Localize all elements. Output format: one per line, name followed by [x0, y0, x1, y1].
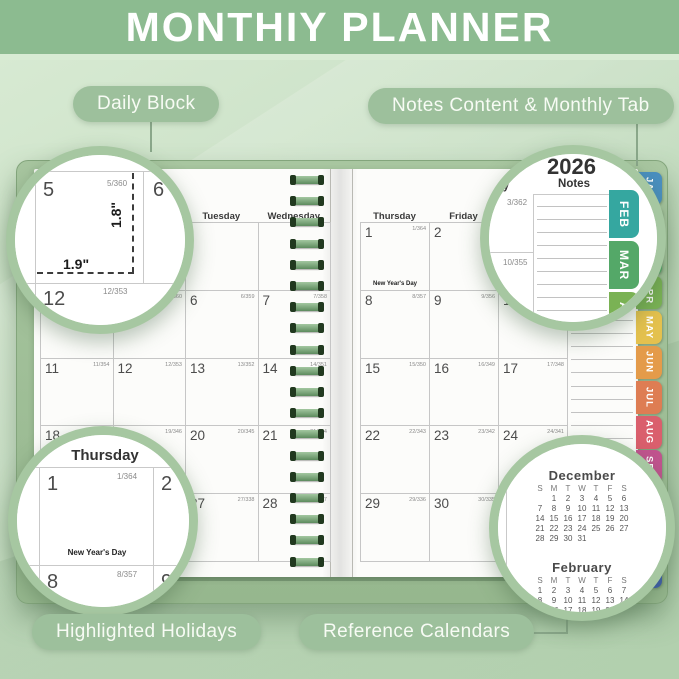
calendar-cell: 2020/345: [186, 426, 259, 494]
magnifier-circle-holidays: Thursday 1 1/364 2 New Year's Day 8 8/35…: [8, 426, 198, 616]
weekday-letter: S: [617, 576, 631, 586]
connector-line: [150, 118, 152, 152]
mini-calendar-day: 10: [561, 596, 575, 606]
cell-daycount: 10/355: [503, 258, 527, 267]
callout-highlighted-holidays: Highlighted Holidays: [32, 614, 261, 650]
mini-calendar-day: 29: [547, 534, 561, 544]
month-tab: JUL: [636, 381, 662, 414]
spiral-loop: [292, 473, 322, 481]
month-tab-magnified: MAR: [609, 241, 639, 289]
cell-date: 20: [190, 428, 205, 443]
mini-calendar-day: 3: [561, 586, 575, 596]
mini-calendar-weekdays: SMTWTFS: [531, 484, 633, 494]
spiral-loop: [292, 558, 322, 566]
cell-daycount: 23/342: [478, 429, 495, 435]
mini-calendar-day: 4: [575, 586, 589, 596]
month-tab: JUN: [636, 346, 662, 379]
mini-calendar-day: 23: [561, 524, 575, 534]
mini-calendar-day: 5: [589, 586, 603, 596]
spiral-loop: [292, 303, 322, 311]
grid-line: [35, 171, 36, 315]
cell-daycount: 8/357: [117, 570, 137, 579]
mini-calendar-day: 19: [589, 606, 603, 612]
cell-date: 15: [365, 361, 380, 376]
spiral-loop: [292, 282, 322, 290]
notes-line: [537, 232, 607, 233]
mini-calendar-day: [603, 534, 617, 544]
cell-date: 5: [43, 179, 54, 202]
month-tab-magnified: APR: [609, 292, 639, 322]
planner-year: 2026: [547, 154, 596, 180]
mini-calendar-week: 21222324252627: [531, 524, 633, 534]
height-dimension-line: [132, 173, 134, 273]
product-image: MONTHIY PLANNER SundayMondayTuesdayWedne…: [0, 0, 679, 679]
mini-calendar-week: 891011121314: [531, 596, 633, 606]
width-dimension-line: [37, 272, 134, 274]
cell-date: 1: [365, 225, 373, 240]
mini-calendar-day: 16: [561, 514, 575, 524]
month-tab-label: FEB: [617, 201, 631, 228]
spiral-loop: [292, 409, 322, 417]
mini-calendar-day: 4: [589, 494, 603, 504]
spiral-loop: [292, 240, 322, 248]
weekday-letter: F: [603, 484, 617, 494]
spiral-loop: [292, 218, 322, 226]
callout-notes-tab: Notes Content & Monthly Tab: [368, 88, 674, 124]
mini-calendar-february: FebruarySMTWTFS1234567891011121314151617…: [531, 560, 633, 612]
holiday-label: New Year's Day: [43, 548, 151, 557]
cell-date: 16: [434, 361, 449, 376]
spiral-loop: [292, 261, 322, 269]
calendar-cell: 66/359: [186, 291, 259, 359]
cell-date: 6: [153, 179, 164, 202]
mini-calendar-day: 8: [547, 504, 561, 514]
calendar-cell: 88/357: [361, 291, 430, 359]
cell-date: 17: [503, 361, 518, 376]
mini-calendar-day: 6: [617, 494, 631, 504]
month-tab-label: JUL: [644, 387, 655, 408]
cell-date: 28: [263, 496, 278, 511]
weekday-letter: T: [589, 484, 603, 494]
mini-calendar-day: 18: [589, 514, 603, 524]
month-tab-label: APR: [617, 302, 631, 322]
cell-daycount: 12/353: [103, 287, 127, 296]
mini-calendar-day: 1: [533, 586, 547, 596]
weekday-letter: T: [589, 576, 603, 586]
callout-reference-calendars: Reference Calendars: [299, 614, 534, 650]
mini-calendar-day: 11: [575, 596, 589, 606]
connector-line: [636, 122, 638, 166]
mini-calendar-title: December: [531, 468, 633, 484]
cell-daycount: 19/346: [165, 429, 182, 435]
notes-line: [571, 412, 633, 413]
cell-date: 2: [161, 473, 172, 496]
grid-line: [506, 444, 507, 612]
cell-daycount: 17/348: [547, 362, 564, 368]
notes-line: [537, 271, 607, 272]
mini-calendar-week: 14151617181920: [531, 514, 633, 524]
cell-daycount: 22/343: [409, 429, 426, 435]
mini-calendar-day: 7: [617, 586, 631, 596]
month-tab-label: JUN: [644, 351, 655, 373]
mini-calendar-day: 17: [561, 606, 575, 612]
cell-daycount-fragment: 61: [16, 179, 25, 188]
mini-calendar-week: 78910111213: [531, 504, 633, 514]
notes-line: [571, 333, 633, 334]
cell-daycount: 13/352: [238, 362, 255, 368]
weekday-letter: T: [561, 484, 575, 494]
magnifier-circle-daily-block: 61 5 5/360 6 1.8" 1.9" 12 12/353: [6, 146, 194, 334]
cell-date: 1: [47, 473, 58, 496]
spiral-loop: [292, 197, 322, 205]
cell-date: 8: [365, 293, 373, 308]
notes-line: [537, 258, 607, 259]
day-header: Thursday: [360, 211, 429, 222]
notes-line: [537, 245, 607, 246]
product-banner: MONTHIY PLANNER: [0, 0, 679, 54]
mini-calendar-day: 31: [575, 534, 589, 544]
mini-calendar-week: 15161718192021: [531, 606, 633, 612]
notes-line: [571, 399, 633, 400]
cell-date: 2: [434, 225, 442, 240]
mini-calendar-day: 16: [547, 606, 561, 612]
cell-daycount: 24/341: [547, 429, 564, 435]
mini-calendar-day: [589, 534, 603, 544]
month-tab-magnified: FEB: [609, 190, 639, 238]
day-header: Tuesday: [185, 211, 258, 222]
spiral-loop: [292, 388, 322, 396]
cell-daycount: 5/360: [107, 179, 127, 188]
month-tab-label: AUG: [644, 420, 655, 444]
mini-calendar-day: 9: [547, 596, 561, 606]
day-header: Thursday: [53, 447, 157, 464]
mini-calendar-week: 123456: [531, 494, 633, 504]
mini-calendar-day: 27: [617, 524, 631, 534]
calendar-cell: 1313/352: [186, 359, 259, 427]
mini-calendar-day: 1: [547, 494, 561, 504]
mini-calendar-day: 25: [589, 524, 603, 534]
calendar-cell: 1111/354: [41, 359, 114, 427]
mini-calendar-day: 24: [575, 524, 589, 534]
month-tab: AUG: [636, 416, 662, 449]
callout-daily-block: Daily Block: [73, 86, 219, 122]
grid-line: [35, 467, 189, 468]
cell-date: 7: [263, 293, 271, 308]
cell-date: 8: [47, 571, 58, 594]
cell-daycount: 1/364: [412, 226, 426, 232]
mini-calendar-day: 8: [533, 596, 547, 606]
mini-calendar-day: 18: [575, 606, 589, 612]
page-title: MONTHIY PLANNER: [126, 4, 554, 51]
notes-line: [537, 219, 607, 220]
mini-calendar-day: 10: [575, 504, 589, 514]
grid-line: [533, 194, 609, 195]
cell-daycount: 12/353: [165, 362, 182, 368]
mini-calendar-day: 13: [603, 596, 617, 606]
banner-accent-strip: [0, 54, 679, 60]
cell-date: 13: [190, 361, 205, 376]
spiral-loop: [292, 430, 322, 438]
calendar-cell: 2929/336: [361, 494, 430, 562]
notes-line: [537, 310, 607, 311]
grid-line: [39, 467, 40, 607]
month-tab: MAY: [636, 311, 662, 344]
calendar-cell: 11/364New Year's Day: [361, 223, 430, 291]
mini-calendar-day: 21: [533, 524, 547, 534]
mini-calendar-day: 12: [603, 504, 617, 514]
spiral-loop: [292, 494, 322, 502]
cell-date: 12: [118, 361, 133, 376]
mini-calendar-day: 6: [603, 586, 617, 596]
mini-calendar-day: 19: [603, 514, 617, 524]
magnifier-content: 2026 y Notes 3/362 10/355 FEBMARAPRMAY: [489, 154, 657, 322]
grid-line: [533, 194, 534, 322]
cell-date: 14: [263, 361, 278, 376]
cell-daycount: 9/356: [481, 294, 495, 300]
weekday-letter: F: [603, 576, 617, 586]
mini-calendar-day: 20: [603, 606, 617, 612]
grid-line: [489, 252, 533, 253]
height-dimension-label: 1.8": [108, 202, 124, 228]
spiral-loop: [292, 176, 322, 184]
cell-date: 6: [190, 293, 198, 308]
magnifier-circle-reference-calendars: DecemberSMTWTFS1234567891011121314151617…: [489, 435, 675, 621]
cell-daycount: 3/362: [507, 198, 527, 207]
grid-line: [33, 171, 185, 172]
notes-line: [571, 425, 633, 426]
mini-calendar-day: 26: [603, 524, 617, 534]
cell-date: 11: [45, 361, 59, 376]
cell-daycount: 15/350: [409, 362, 426, 368]
weekday-letter: S: [533, 576, 547, 586]
spine-shadow-right: [340, 169, 358, 577]
mini-calendar-day: 3: [575, 494, 589, 504]
weekday-letter: T: [561, 576, 575, 586]
grid-line: [15, 283, 185, 284]
cell-daycount: 29/336: [409, 497, 426, 503]
notes-column-header: Notes: [539, 178, 609, 190]
mini-calendar-day: 14: [617, 596, 631, 606]
calendar-cell: 2323/342: [430, 426, 499, 494]
cell-daycount: 6/359: [241, 294, 255, 300]
month-tab-label: MAY: [644, 316, 655, 339]
weekday-letter: W: [575, 484, 589, 494]
notes-line: [571, 359, 633, 360]
notes-line: [537, 284, 607, 285]
mini-calendar-day: 28: [533, 534, 547, 544]
mini-calendar-day: 20: [617, 514, 631, 524]
cell-daycount: 16/349: [478, 362, 495, 368]
mini-calendar-day: 9: [561, 504, 575, 514]
notes-line: [537, 206, 607, 207]
calendar-cell: 1212/353: [114, 359, 187, 427]
calendar-cell: 2828/337: [259, 494, 332, 562]
calendar-cell: 99/356: [430, 291, 499, 359]
cell-daycount: 11/354: [93, 362, 109, 368]
weekday-letter: M: [547, 484, 561, 494]
mini-calendar-day: 11: [589, 504, 603, 514]
mini-calendar-week: 1234567: [531, 586, 633, 596]
cell-date: 22: [365, 428, 380, 443]
mini-calendar-day: [533, 494, 547, 504]
weekday-letter: S: [617, 484, 631, 494]
calendar-cell: 1717/348: [499, 359, 568, 427]
notes-line: [537, 297, 607, 298]
cell-date: 12: [43, 288, 65, 311]
mini-calendar-day: 7: [533, 504, 547, 514]
cell-date: 21: [263, 428, 278, 443]
mini-calendar-day: 2: [561, 494, 575, 504]
weekday-letter: W: [575, 576, 589, 586]
grid-line: [17, 565, 189, 566]
mini-calendar-day: 13: [617, 504, 631, 514]
mini-calendar-december: DecemberSMTWTFS1234567891011121314151617…: [531, 468, 633, 544]
mini-calendar-day: 5: [603, 494, 617, 504]
magnifier-content: Thursday 1 1/364 2 New Year's Day 8 8/35…: [17, 435, 189, 607]
mini-calendar-day: 30: [561, 534, 575, 544]
mini-calendar-weekdays: SMTWTFS: [531, 576, 633, 586]
calendar-cell: 1616/349: [430, 359, 499, 427]
spiral-loop: [292, 324, 322, 332]
day-header-fragment: y: [503, 180, 509, 192]
spiral-loop: [292, 536, 322, 544]
spiral-loop: [292, 346, 322, 354]
mini-calendar-day: 21: [617, 606, 631, 612]
calendar-cell: 2222/343: [361, 426, 430, 494]
notes-line: [571, 346, 633, 347]
mini-calendar-day: 15: [547, 514, 561, 524]
calendar-cell: 1515/350: [361, 359, 430, 427]
cell-daycount: 1/364: [117, 472, 137, 481]
cell-daycount: 27/338: [238, 497, 255, 503]
weekday-letter: M: [547, 576, 561, 586]
cell-holiday-note: New Year's Day: [361, 281, 429, 287]
mini-calendar-week: 28293031: [531, 534, 633, 544]
cell-date: 24: [503, 428, 518, 443]
calendar-cell: [186, 223, 259, 291]
grid-line: [153, 467, 154, 607]
mini-calendar-title: February: [531, 560, 633, 576]
cell-date: 29: [365, 496, 380, 511]
cell-date: 9: [161, 571, 172, 594]
cell-daycount: 7/358: [313, 294, 327, 300]
weekday-letter: S: [533, 484, 547, 494]
magnifier-circle-notes-tab: 2026 y Notes 3/362 10/355 FEBMARAPRMAY: [480, 145, 666, 331]
spiral-loop: [292, 452, 322, 460]
cell-daycount: 8/357: [412, 294, 426, 300]
cell-daycount: 20/345: [238, 429, 255, 435]
mini-calendar-day: 17: [575, 514, 589, 524]
mini-calendar-day: 22: [547, 524, 561, 534]
spiral-loop: [292, 515, 322, 523]
magnifier-content: DecemberSMTWTFS1234567891011121314151617…: [498, 444, 666, 612]
cell-date: 23: [434, 428, 449, 443]
mini-calendar-day: 15: [533, 606, 547, 612]
mini-calendar-day: 12: [589, 596, 603, 606]
mini-calendar-day: 2: [547, 586, 561, 596]
cell-date: 30: [434, 496, 449, 511]
magnifier-content: 61 5 5/360 6 1.8" 1.9" 12 12/353: [15, 155, 185, 325]
notes-line: [571, 386, 633, 387]
width-dimension-label: 1.9": [63, 256, 89, 272]
page-seam: [352, 169, 353, 577]
month-tab-label: MAR: [617, 250, 631, 280]
grid-line: [143, 171, 144, 283]
spiral-loop: [292, 367, 322, 375]
mini-calendar-day: [617, 534, 631, 544]
notes-line: [571, 372, 633, 373]
cell-date: 9: [434, 293, 442, 308]
mini-calendar-day: 14: [533, 514, 547, 524]
